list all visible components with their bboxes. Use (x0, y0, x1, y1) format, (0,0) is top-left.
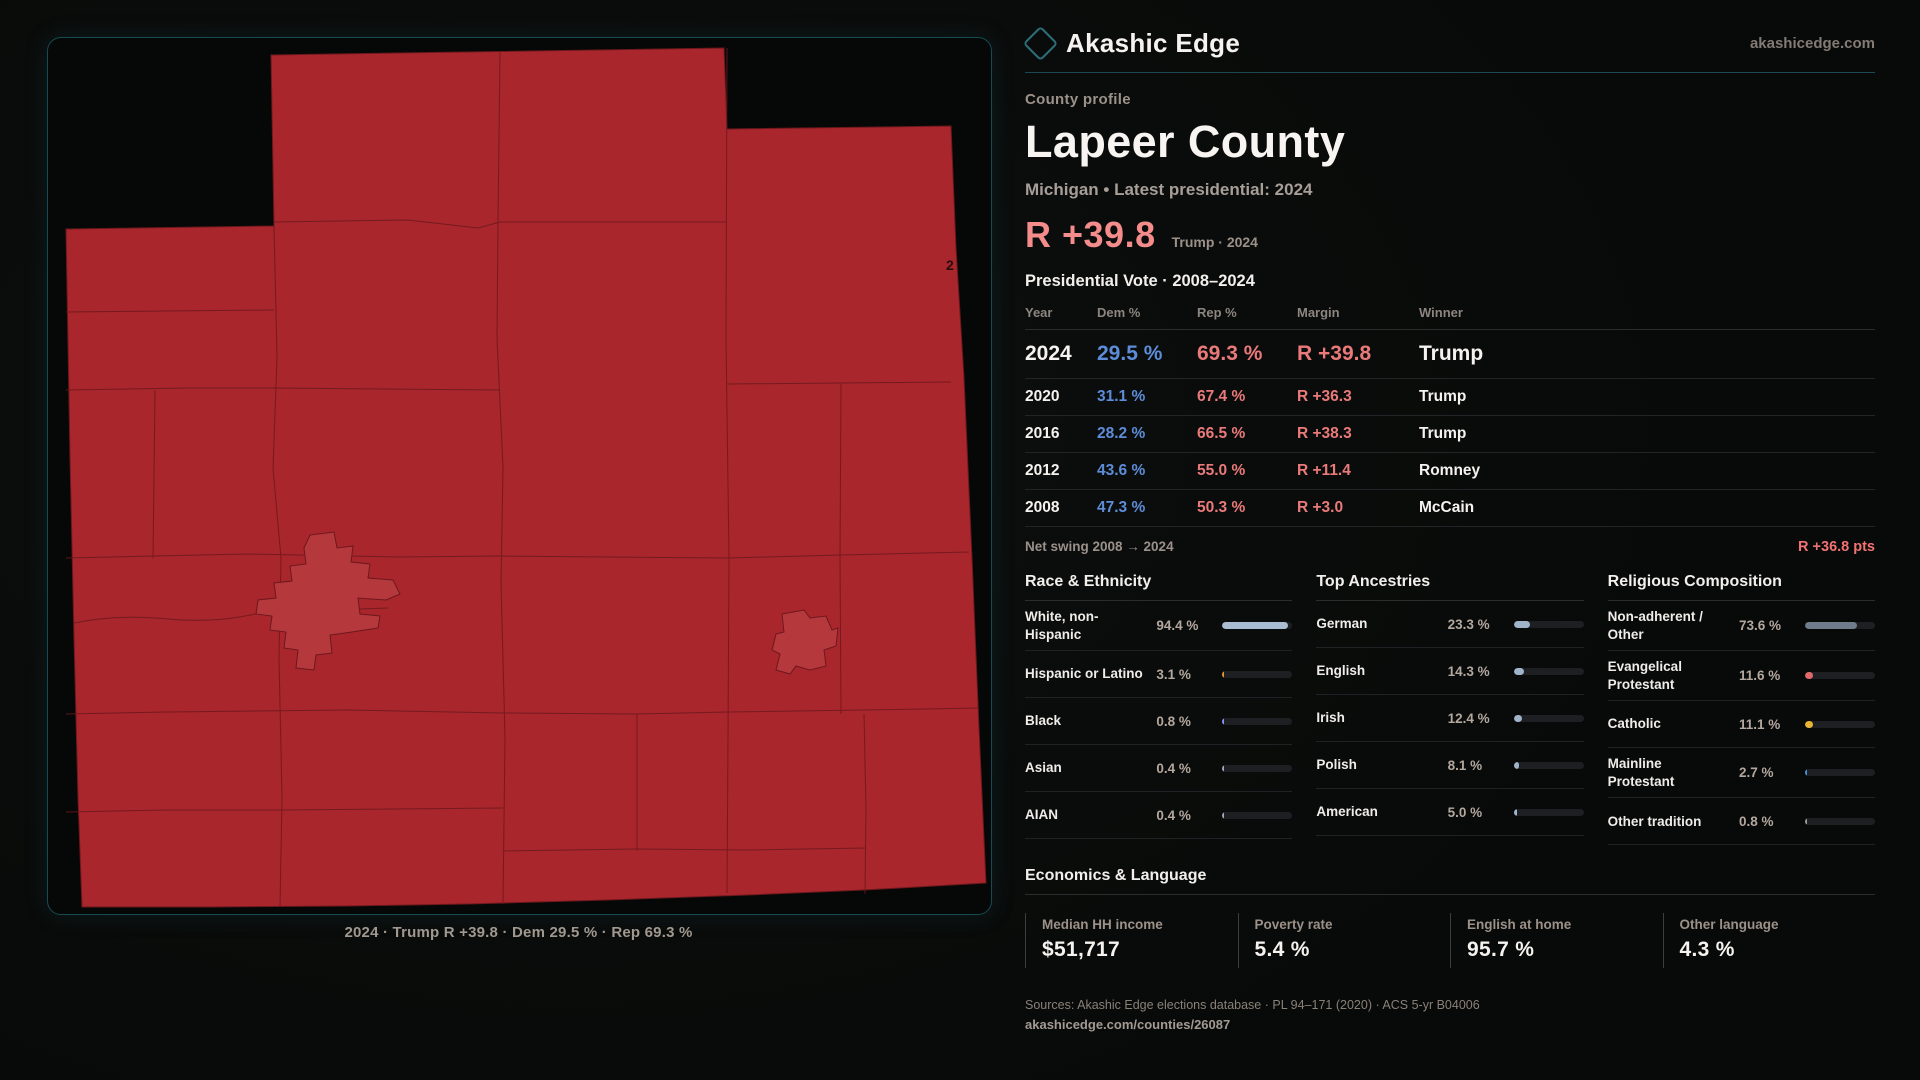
demo-label: Catholic (1608, 715, 1731, 733)
vote-table-row[interactable]: 201243.6 %55.0 %R +11.4Romney (1025, 453, 1875, 490)
map-stray-label: 2 (946, 257, 954, 273)
demo-label: Asian (1025, 759, 1148, 777)
vote-table-row[interactable]: 200847.3 %50.3 %R +3.0McCain (1025, 490, 1875, 527)
demo-value: 23.3 % (1448, 617, 1506, 632)
demo-row: Black0.8 % (1025, 698, 1292, 745)
stat-value: 5.4 % (1255, 938, 1451, 962)
brand-name: Akashic Edge (1066, 28, 1240, 59)
cell-rep-pct: 66.5 % (1197, 425, 1297, 443)
demo-bar-fill (1514, 621, 1530, 628)
cell-winner: McCain (1419, 499, 1875, 517)
demo-column-title: Race & Ethnicity (1025, 573, 1292, 601)
demo-label: English (1316, 662, 1439, 680)
cell-year: 2020 (1025, 388, 1097, 406)
demo-row: Asian0.4 % (1025, 745, 1292, 792)
demo-bar-fill (1805, 672, 1813, 679)
cell-dem-pct: 28.2 % (1097, 425, 1197, 443)
demo-label: American (1316, 803, 1439, 821)
demo-value: 8.1 % (1448, 758, 1506, 773)
demo-value: 0.8 % (1739, 814, 1797, 829)
brand-diamond-icon (1023, 26, 1058, 61)
county-shape[interactable] (66, 48, 986, 907)
cell-margin: R +39.8 (1297, 342, 1419, 366)
demo-value: 73.6 % (1739, 618, 1797, 633)
cell-dem-pct: 29.5 % (1097, 342, 1197, 366)
demo-value: 2.7 % (1739, 765, 1797, 780)
stat-block: English at home95.7 % (1450, 913, 1663, 968)
demo-bar-fill (1805, 721, 1813, 728)
demo-row: English14.3 % (1316, 648, 1583, 695)
cell-dem-pct: 31.1 % (1097, 388, 1197, 406)
county-map[interactable]: 2 (48, 38, 991, 914)
vote-table: Year Dem % Rep % Margin Winner 202429.5 … (1025, 301, 1875, 527)
demo-column-ancestries: Top AncestriesGerman23.3 %English14.3 %I… (1316, 573, 1583, 845)
demo-value: 0.4 % (1156, 808, 1214, 823)
demo-value: 94.4 % (1156, 618, 1214, 633)
demo-bar-fill (1805, 622, 1857, 629)
net-swing-label: Net swing 2008 → 2024 (1025, 539, 1174, 554)
demo-label: Evangelical Protestant (1608, 658, 1731, 693)
demo-column-title: Religious Composition (1608, 573, 1875, 601)
county-profile-panel: Akashic Edge akashicedge.com County prof… (1025, 28, 1875, 1032)
cell-margin: R +3.0 (1297, 499, 1419, 517)
cell-dem-pct: 47.3 % (1097, 499, 1197, 517)
county-map-card: 2 (47, 37, 992, 915)
stat-block: Median HH income$51,717 (1025, 913, 1238, 968)
demo-bar-fill (1514, 668, 1524, 675)
demo-column-religion: Religious CompositionNon-adherent / Othe… (1608, 573, 1875, 845)
demo-value: 5.0 % (1448, 805, 1506, 820)
demo-bar-fill (1222, 718, 1224, 725)
stat-block: Poverty rate5.4 % (1238, 913, 1451, 968)
stat-value: $51,717 (1042, 938, 1238, 962)
demographics-grid: Race & EthnicityWhite, non-Hispanic94.4 … (1025, 573, 1875, 845)
map-caption: 2024 · Trump R +39.8 · Dem 29.5 % · Rep … (47, 924, 990, 941)
page-title: Lapeer County (1025, 116, 1875, 168)
economics-title: Economics & Language (1025, 867, 1875, 895)
demo-bar (1805, 769, 1875, 776)
demo-bar-fill (1222, 622, 1288, 629)
cell-winner: Trump (1419, 388, 1875, 406)
cell-rep-pct: 69.3 % (1197, 342, 1297, 366)
demo-bar (1514, 809, 1584, 816)
margin-context: Trump · 2024 (1172, 234, 1258, 250)
page-subtitle: Michigan • Latest presidential: 2024 (1025, 180, 1875, 200)
demo-label: Hispanic or Latino (1025, 665, 1148, 683)
cell-winner: Trump (1419, 425, 1875, 443)
demo-row: Catholic11.1 % (1608, 701, 1875, 748)
demo-bar (1514, 715, 1584, 722)
brand-header: Akashic Edge akashicedge.com (1025, 28, 1875, 59)
stat-label: Median HH income (1042, 917, 1238, 932)
demo-row: Other tradition0.8 % (1608, 798, 1875, 845)
col-margin: Margin (1297, 305, 1419, 320)
stat-block: Other language4.3 % (1663, 913, 1876, 968)
demo-value: 14.3 % (1448, 664, 1506, 679)
eyebrow-label: County profile (1025, 91, 1875, 108)
demo-label: Polish (1316, 756, 1439, 774)
cell-margin: R +38.3 (1297, 425, 1419, 443)
demo-row: American5.0 % (1316, 789, 1583, 836)
demo-bar (1222, 765, 1292, 772)
vote-table-title: Presidential Vote · 2008–2024 (1025, 272, 1875, 291)
demo-bar-fill (1222, 671, 1224, 678)
demo-bar (1514, 762, 1584, 769)
stat-value: 95.7 % (1467, 938, 1663, 962)
demo-column-race: Race & EthnicityWhite, non-Hispanic94.4 … (1025, 573, 1292, 845)
stat-label: Poverty rate (1255, 917, 1451, 932)
brand-domain-link[interactable]: akashicedge.com (1750, 35, 1875, 52)
cell-winner: Trump (1419, 342, 1875, 366)
vote-table-row[interactable]: 202429.5 %69.3 %R +39.8Trump (1025, 330, 1875, 379)
cell-year: 2012 (1025, 462, 1097, 480)
demo-value: 11.1 % (1739, 717, 1797, 732)
stat-label: Other language (1680, 917, 1876, 932)
demo-row: Polish8.1 % (1316, 742, 1583, 789)
stat-value: 4.3 % (1680, 938, 1876, 962)
cell-year: 2008 (1025, 499, 1097, 517)
header-divider (1025, 72, 1875, 73)
vote-table-row[interactable]: 202031.1 %67.4 %R +36.3Trump (1025, 379, 1875, 416)
margin-value: R +39.8 (1025, 214, 1156, 256)
demo-value: 11.6 % (1739, 668, 1797, 683)
demo-label: Non-adherent / Other (1608, 608, 1731, 643)
demo-bar (1805, 818, 1875, 825)
col-rep: Rep % (1197, 305, 1297, 320)
demo-value: 3.1 % (1156, 667, 1214, 682)
col-winner: Winner (1419, 305, 1875, 320)
demo-value: 0.8 % (1156, 714, 1214, 729)
demo-bar-fill (1222, 765, 1224, 772)
demo-label: White, non-Hispanic (1025, 608, 1148, 643)
demo-bar (1514, 668, 1584, 675)
footer-permalink[interactable]: akashicedge.com/counties/26087 (1025, 1017, 1875, 1032)
demo-label: Mainline Protestant (1608, 755, 1731, 790)
cell-rep-pct: 50.3 % (1197, 499, 1297, 517)
demo-bar (1222, 671, 1292, 678)
net-swing-value: R +36.8 pts (1798, 539, 1875, 555)
cell-rep-pct: 55.0 % (1197, 462, 1297, 480)
cell-rep-pct: 67.4 % (1197, 388, 1297, 406)
demo-bar-fill (1222, 812, 1224, 819)
demo-row: German23.3 % (1316, 601, 1583, 648)
demo-label: Irish (1316, 709, 1439, 727)
demo-bar-fill (1805, 818, 1807, 825)
footer-sources: Sources: Akashic Edge elections database… (1025, 998, 1875, 1012)
demo-label: Other tradition (1608, 813, 1731, 831)
economics-stats-row: Median HH income$51,717Poverty rate5.4 %… (1025, 913, 1875, 968)
cell-margin: R +36.3 (1297, 388, 1419, 406)
demo-bar-fill (1805, 769, 1807, 776)
page-footer: Sources: Akashic Edge elections database… (1025, 998, 1875, 1032)
vote-table-body: 202429.5 %69.3 %R +39.8Trump202031.1 %67… (1025, 330, 1875, 527)
demo-bar (1805, 622, 1875, 629)
demo-bar (1222, 622, 1292, 629)
net-swing-row: Net swing 2008 → 2024 R +36.8 pts (1025, 539, 1875, 555)
vote-table-header: Year Dem % Rep % Margin Winner (1025, 301, 1875, 330)
cell-year: 2016 (1025, 425, 1097, 443)
vote-table-row[interactable]: 201628.2 %66.5 %R +38.3Trump (1025, 416, 1875, 453)
demo-row: White, non-Hispanic94.4 % (1025, 601, 1292, 651)
demo-bar (1805, 721, 1875, 728)
demo-row: AIAN0.4 % (1025, 792, 1292, 839)
demo-label: German (1316, 615, 1439, 633)
demo-value: 0.4 % (1156, 761, 1214, 776)
demo-row: Irish12.4 % (1316, 695, 1583, 742)
cell-margin: R +11.4 (1297, 462, 1419, 480)
stat-label: English at home (1467, 917, 1663, 932)
demo-bar-fill (1514, 762, 1520, 769)
demo-bar (1222, 718, 1292, 725)
demo-label: AIAN (1025, 806, 1148, 824)
cell-winner: Romney (1419, 462, 1875, 480)
margin-callout: R +39.8 Trump · 2024 (1025, 214, 1875, 256)
demo-bar (1514, 621, 1584, 628)
demo-bar-fill (1514, 715, 1523, 722)
demo-row: Hispanic or Latino3.1 % (1025, 651, 1292, 698)
col-dem: Dem % (1097, 305, 1197, 320)
demo-label: Black (1025, 712, 1148, 730)
demo-row: Mainline Protestant2.7 % (1608, 748, 1875, 798)
demo-bar (1222, 812, 1292, 819)
demo-value: 12.4 % (1448, 711, 1506, 726)
demo-column-title: Top Ancestries (1316, 573, 1583, 601)
col-year: Year (1025, 305, 1097, 320)
demo-row: Non-adherent / Other73.6 % (1608, 601, 1875, 651)
cell-year: 2024 (1025, 342, 1097, 366)
demo-row: Evangelical Protestant11.6 % (1608, 651, 1875, 701)
demo-bar (1805, 672, 1875, 679)
demo-bar-fill (1514, 809, 1518, 816)
cell-dem-pct: 43.6 % (1097, 462, 1197, 480)
